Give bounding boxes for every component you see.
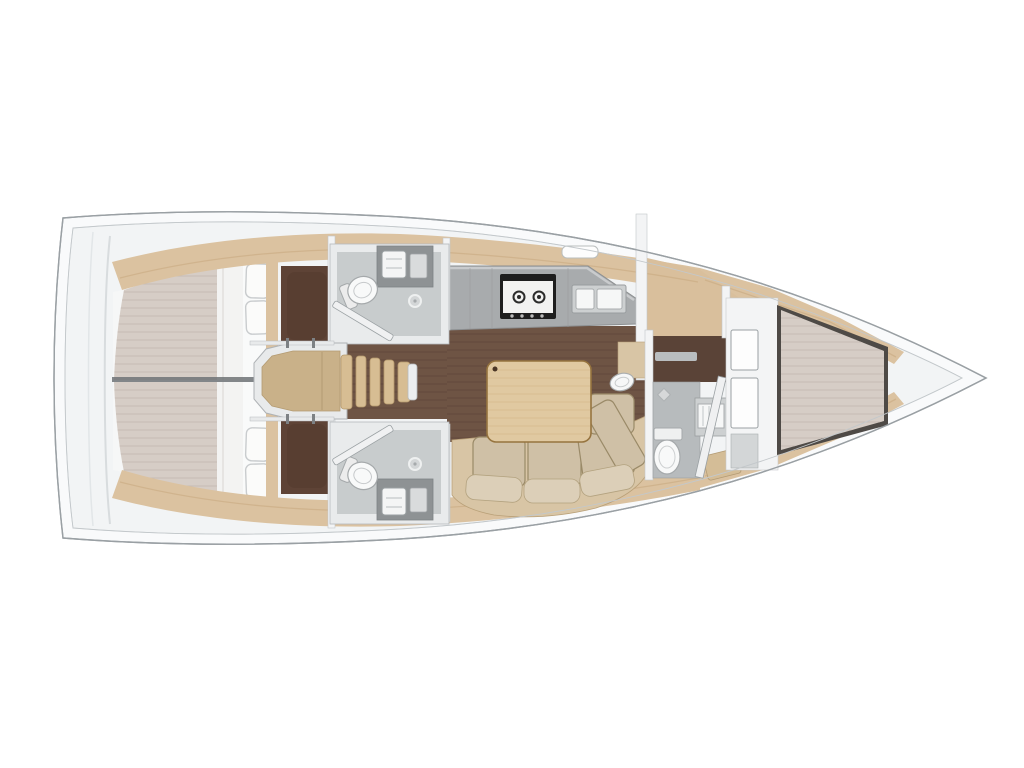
handrail-bottom xyxy=(250,417,334,421)
vanity-sink xyxy=(382,488,406,515)
table-peg xyxy=(493,367,498,372)
sofa-end-cabinet xyxy=(618,342,648,378)
locker-top xyxy=(731,330,758,370)
entry-mat-port xyxy=(287,272,327,340)
entry-mat-starboard xyxy=(287,424,327,488)
table-top xyxy=(487,361,591,442)
toilet-tank xyxy=(654,428,682,440)
vanity-shelf xyxy=(410,254,427,278)
burner-center xyxy=(517,295,521,299)
head-vanity xyxy=(377,246,433,287)
saloon-table xyxy=(487,361,591,442)
head-vanity xyxy=(377,479,433,520)
stove xyxy=(500,274,556,319)
bed-linen-fold xyxy=(217,382,247,498)
fwd-passage-step xyxy=(655,352,697,361)
galley-sink xyxy=(572,285,626,313)
floorplan-svg xyxy=(0,0,1024,768)
handrail-top xyxy=(250,341,334,345)
drain-hole xyxy=(413,462,416,465)
drain-hole xyxy=(413,299,416,302)
fwd-head-wall xyxy=(645,330,653,480)
burner-center xyxy=(537,295,541,299)
deck-hatch xyxy=(562,246,598,258)
step-end-cap xyxy=(408,364,417,400)
sink-basin-large xyxy=(597,289,622,309)
yacht-floorplan-image xyxy=(0,0,1024,768)
toilet-icon xyxy=(654,428,682,474)
vanity-sink xyxy=(382,251,406,278)
stair-steps xyxy=(341,355,410,409)
vanity-shelf xyxy=(410,488,427,512)
locker-step xyxy=(731,434,758,468)
stair-platform xyxy=(262,351,340,411)
sink-basin-small xyxy=(576,289,594,309)
locker-bottom xyxy=(731,378,758,428)
bed-linen-fold xyxy=(217,264,247,380)
toilet-bowl xyxy=(654,440,680,474)
aft-head-starboard xyxy=(330,422,449,524)
aft-head-port xyxy=(330,244,449,344)
